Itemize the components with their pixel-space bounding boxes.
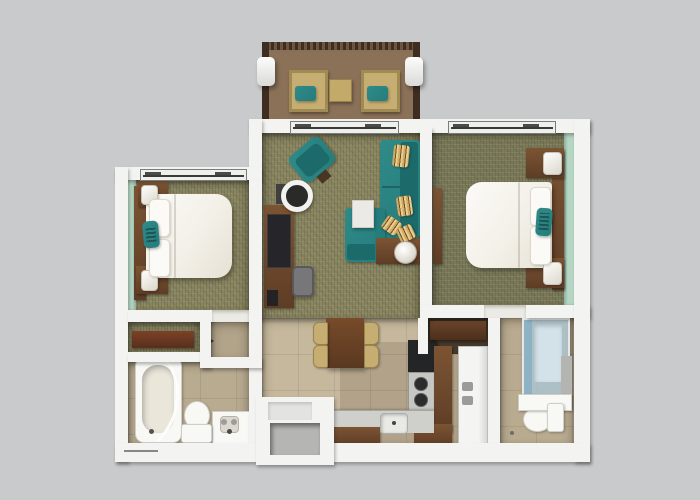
window-bedroom-right (448, 121, 556, 134)
niche-shelf (430, 321, 486, 340)
desk-chair (292, 266, 314, 297)
nook-floor (211, 322, 249, 357)
dining-table (326, 318, 364, 368)
fridge-handle-1 (462, 382, 473, 391)
dining-chair-2 (313, 345, 328, 368)
bed-right-fold (518, 182, 520, 268)
dresser-right (433, 188, 442, 264)
kitchen-sink (380, 413, 408, 434)
kitchen-counter-right (434, 346, 452, 432)
wall-bedroom-right-bottom-a (420, 305, 484, 318)
floor-drain (510, 431, 514, 435)
sofa-pillow-2 (396, 195, 414, 217)
patio-chair-cushion (295, 86, 316, 101)
wall-living-bedroom-right (420, 127, 432, 318)
entry-vestibule (256, 397, 334, 465)
dining-chair-1 (313, 322, 328, 345)
sofa-white-table (352, 200, 374, 228)
wall-bottom (115, 443, 590, 462)
wall-bedroom-left-bottom (128, 310, 212, 322)
window-living-slider (290, 121, 399, 134)
refrigerator (458, 346, 488, 450)
window-bedroom-left (140, 169, 247, 181)
vanity-left-faucet (227, 429, 232, 434)
lamp-right-bottom (543, 262, 562, 285)
teal-pillow-pattern (538, 213, 549, 231)
balcony (262, 42, 420, 120)
vanity-left-knob-1 (221, 419, 227, 425)
balcony-pillar-left (257, 57, 275, 86)
balcony-railing-top (262, 42, 420, 50)
wall-nook-bottom (200, 357, 262, 368)
entry-recess (270, 423, 320, 455)
toilet-right-tank (547, 403, 564, 432)
toilet-left-tank (181, 424, 212, 443)
bedroom-right-accent-wall (564, 131, 574, 305)
burner-1 (414, 377, 428, 391)
sofa-seam (382, 186, 400, 188)
wall-closet-bottom (128, 352, 200, 362)
balcony-pillar-right (405, 57, 423, 86)
burner-2 (414, 393, 428, 407)
closet-shelf (132, 331, 194, 348)
bed-left-fold (174, 194, 176, 278)
wall-niche-left (418, 318, 428, 354)
dining-chair-4 (364, 345, 379, 368)
wall-kitchen-bathroom (488, 318, 500, 443)
wall-outer-right (574, 119, 590, 462)
bed-left-teal-pillow (142, 220, 160, 248)
kitchen-faucet (392, 421, 396, 425)
entry-door-slit (124, 450, 158, 452)
patio-chair-left (289, 70, 328, 112)
vanity-left (212, 411, 253, 444)
entry-vestibule-step (268, 402, 312, 420)
dining-chair-3 (364, 322, 379, 345)
media-box (267, 290, 278, 306)
patio-chair-cushion (367, 86, 388, 101)
bed-right-teal-pillow (535, 207, 553, 236)
teal-pillow-pattern (145, 226, 156, 243)
shower-pan (534, 324, 562, 382)
vanity-left-knob-2 (231, 419, 237, 425)
lamp-right-top (543, 152, 562, 175)
table-lamp (394, 241, 417, 264)
patio-side-table (329, 79, 352, 102)
sofa-pillow-1 (392, 144, 410, 168)
floor-plan-render (0, 0, 700, 500)
wall-outer-left (115, 167, 128, 462)
patio-chair-right (361, 70, 400, 112)
round-side-table (281, 180, 313, 212)
shower-glass-panel (524, 320, 532, 402)
doorway-bedroom-left (212, 310, 249, 322)
tv (267, 214, 291, 268)
fridge-handle-2 (462, 396, 473, 405)
doorway-bedroom-right (484, 305, 526, 318)
